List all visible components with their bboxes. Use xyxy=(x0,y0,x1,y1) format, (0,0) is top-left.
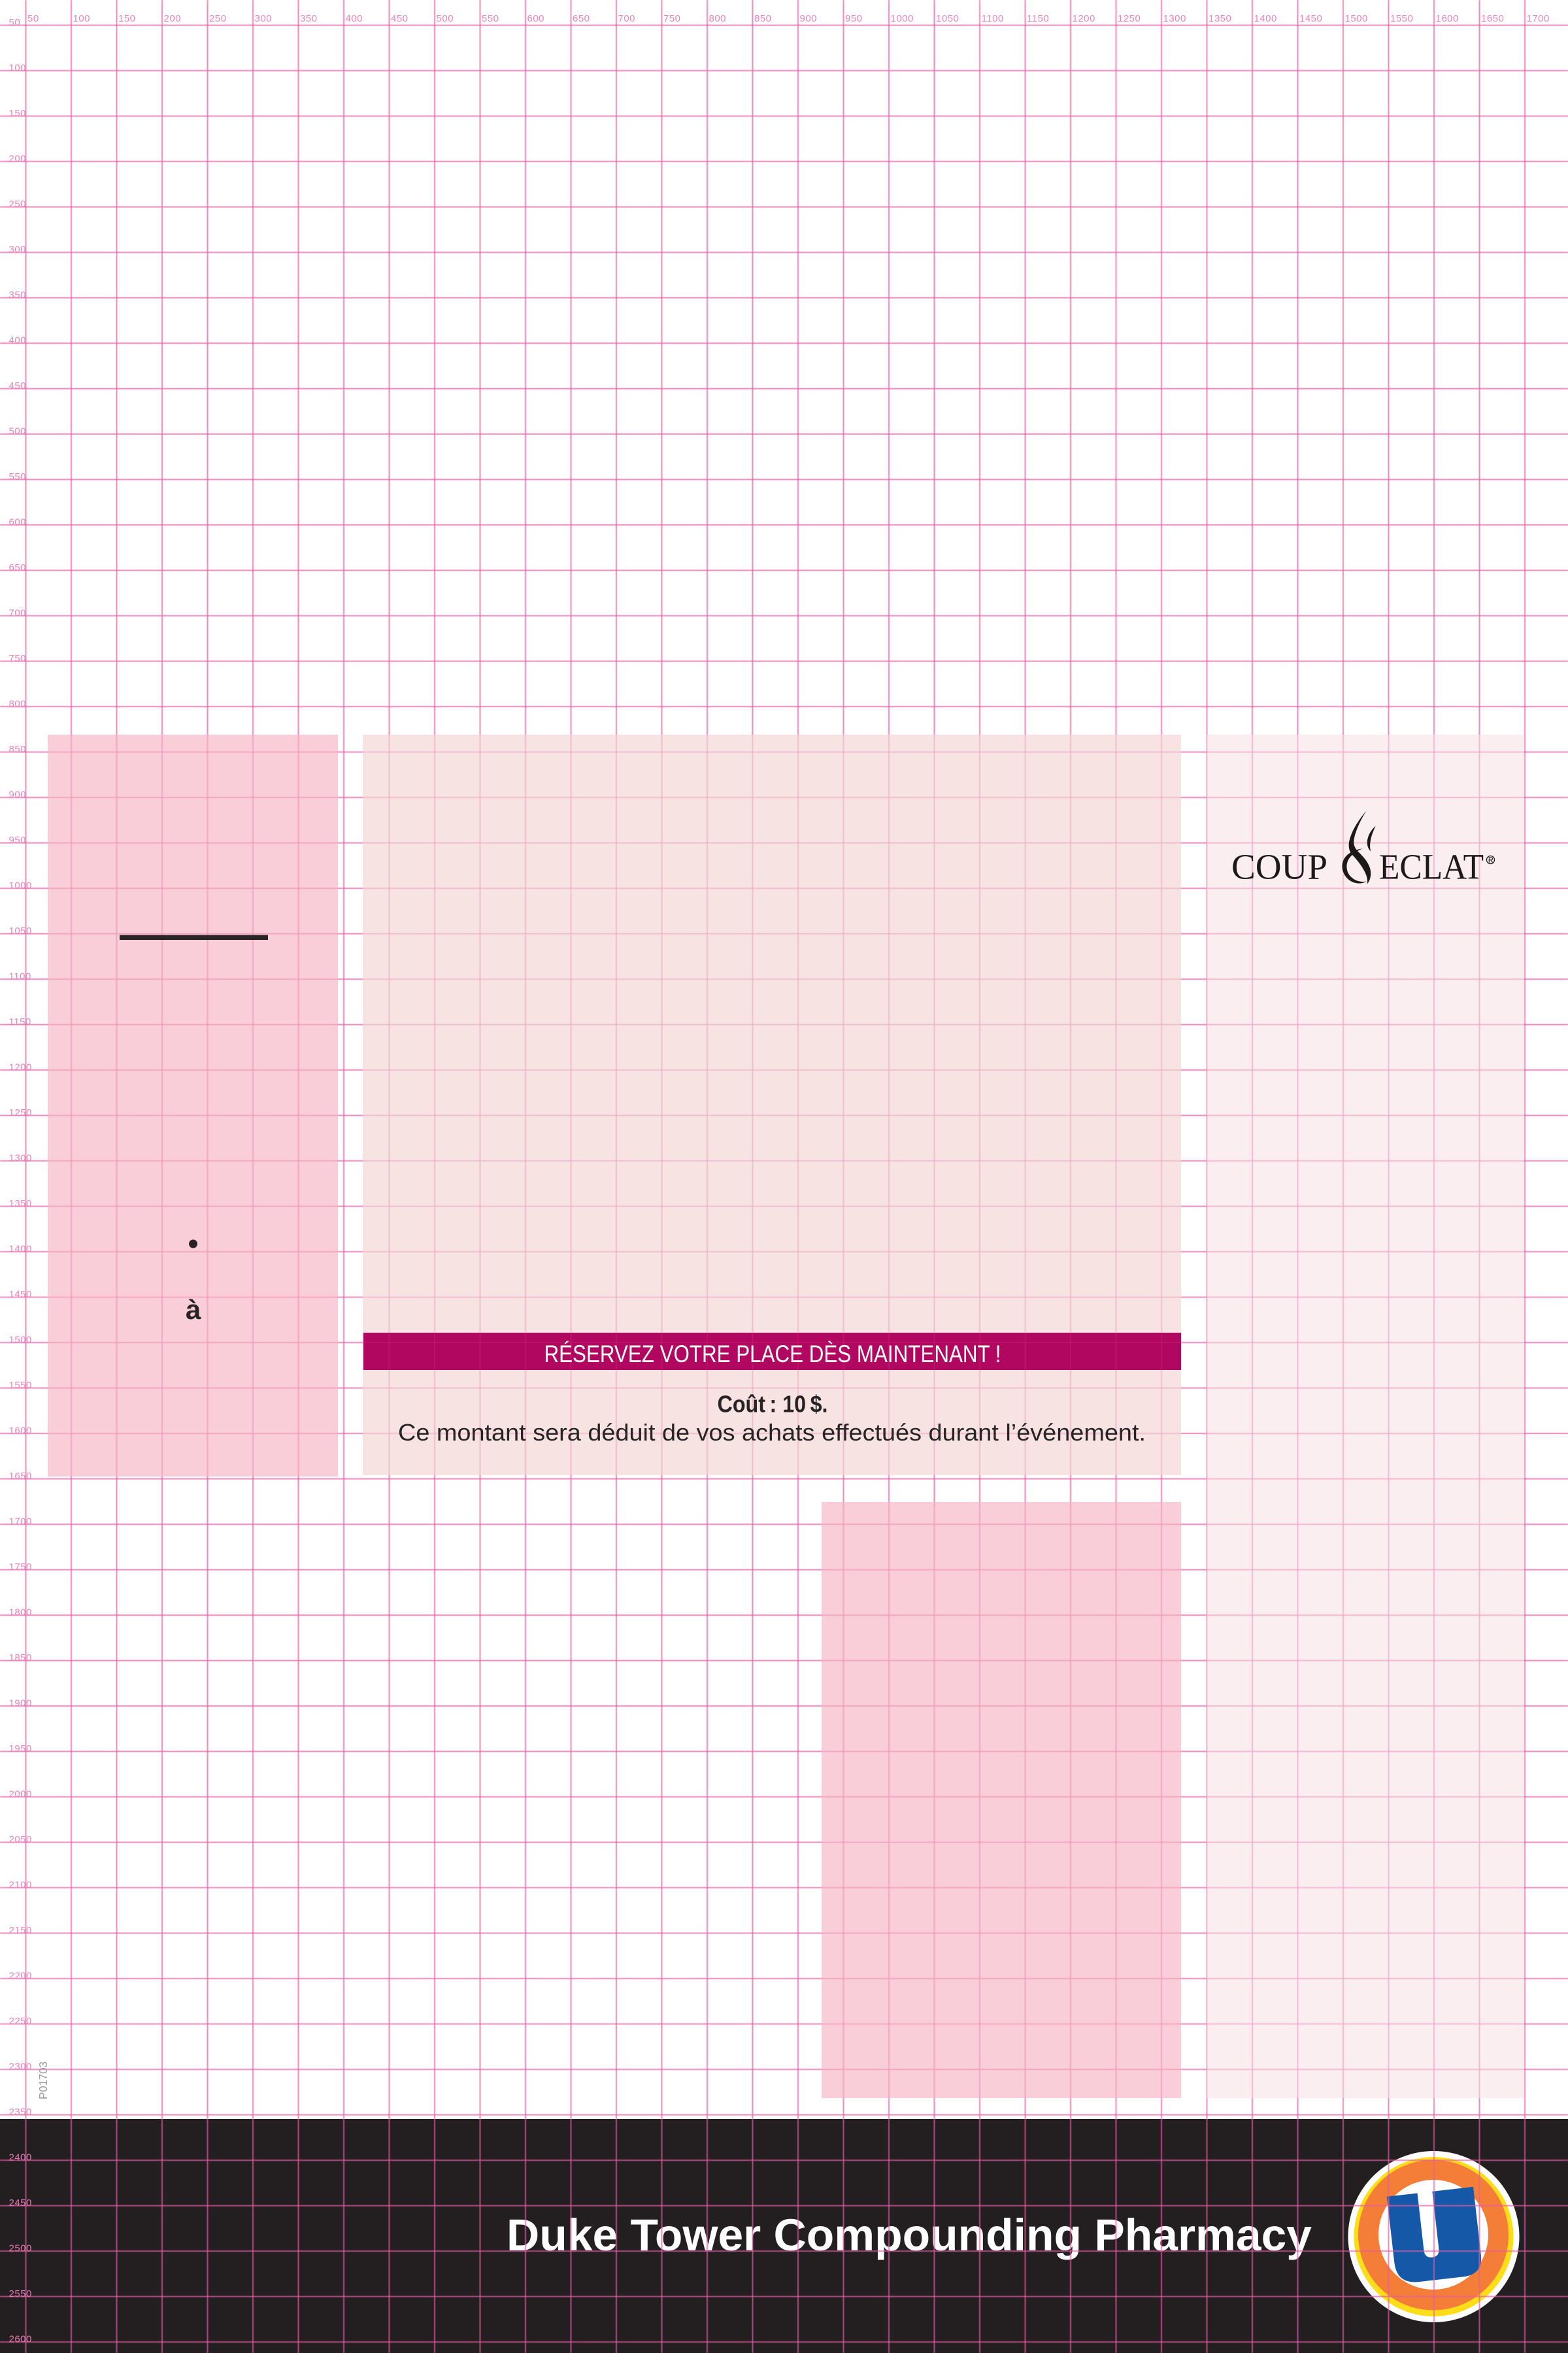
svg-text:900: 900 xyxy=(800,13,818,24)
svg-text:200: 200 xyxy=(9,154,27,165)
svg-text:450: 450 xyxy=(9,380,27,392)
svg-text:1900: 1900 xyxy=(9,1698,32,1709)
svg-text:650: 650 xyxy=(9,562,27,573)
svg-text:2350: 2350 xyxy=(9,2107,32,2118)
svg-text:1250: 1250 xyxy=(1118,13,1141,24)
svg-text:1650: 1650 xyxy=(1481,13,1504,24)
svg-text:1200: 1200 xyxy=(9,1062,32,1073)
svg-text:1550: 1550 xyxy=(9,1380,32,1391)
svg-text:1450: 1450 xyxy=(9,1289,32,1300)
svg-text:1100: 1100 xyxy=(982,13,1004,24)
svg-text:1550: 1550 xyxy=(1390,13,1413,24)
svg-text:2600: 2600 xyxy=(9,2334,32,2345)
svg-text:300: 300 xyxy=(255,13,273,24)
svg-text:1000: 1000 xyxy=(9,880,32,892)
svg-text:2550: 2550 xyxy=(9,2288,32,2299)
svg-text:50: 50 xyxy=(27,13,39,24)
svg-text:600: 600 xyxy=(527,13,545,24)
svg-text:850: 850 xyxy=(754,13,772,24)
svg-text:2100: 2100 xyxy=(9,1880,32,1891)
svg-text:1400: 1400 xyxy=(1254,13,1277,24)
svg-text:2000: 2000 xyxy=(9,1789,32,1800)
svg-text:200: 200 xyxy=(164,13,182,24)
svg-text:450: 450 xyxy=(391,13,409,24)
svg-text:850: 850 xyxy=(9,744,27,755)
svg-text:1700: 1700 xyxy=(1527,13,1550,24)
svg-text:1750: 1750 xyxy=(9,1561,32,1573)
svg-text:950: 950 xyxy=(845,13,863,24)
svg-text:650: 650 xyxy=(573,13,590,24)
svg-text:1350: 1350 xyxy=(9,1198,32,1209)
svg-text:550: 550 xyxy=(482,13,499,24)
svg-text:1500: 1500 xyxy=(1345,13,1368,24)
svg-text:1600: 1600 xyxy=(1436,13,1459,24)
svg-text:500: 500 xyxy=(9,426,27,437)
svg-text:550: 550 xyxy=(9,471,27,482)
svg-text:1300: 1300 xyxy=(9,1153,32,1164)
svg-text:700: 700 xyxy=(9,608,27,619)
svg-text:2500: 2500 xyxy=(9,2243,32,2254)
svg-text:100: 100 xyxy=(9,63,27,74)
svg-text:1250: 1250 xyxy=(9,1107,32,1118)
svg-text:800: 800 xyxy=(709,13,727,24)
svg-text:1700: 1700 xyxy=(9,1516,32,1527)
svg-text:500: 500 xyxy=(437,13,454,24)
svg-text:P01703: P01703 xyxy=(37,2061,50,2099)
svg-text:1200: 1200 xyxy=(1073,13,1095,24)
svg-text:1600: 1600 xyxy=(9,1426,32,1437)
svg-text:150: 150 xyxy=(118,13,136,24)
svg-text:2400: 2400 xyxy=(9,2152,32,2163)
svg-text:2200: 2200 xyxy=(9,1971,32,1982)
svg-text:50: 50 xyxy=(9,17,21,28)
svg-text:2050: 2050 xyxy=(9,1834,32,1845)
svg-text:350: 350 xyxy=(300,13,318,24)
svg-text:600: 600 xyxy=(9,517,27,528)
svg-text:1500: 1500 xyxy=(9,1335,32,1346)
svg-text:750: 750 xyxy=(663,13,681,24)
svg-text:RÉSERVEZ VOTRE PLACE DÈS MAINT: RÉSERVEZ VOTRE PLACE DÈS MAINTENANT ! xyxy=(544,1341,1001,1367)
svg-text:1150: 1150 xyxy=(9,1016,31,1027)
svg-text:250: 250 xyxy=(209,13,227,24)
svg-text:900: 900 xyxy=(9,790,27,801)
svg-text:Ce montant sera déduit de vos: Ce montant sera déduit de vos achats eff… xyxy=(398,1419,1146,1446)
svg-text:2250: 2250 xyxy=(9,2016,32,2027)
svg-text:100: 100 xyxy=(73,13,91,24)
svg-text:1800: 1800 xyxy=(9,1607,32,1618)
svg-text:400: 400 xyxy=(9,335,27,346)
svg-text:300: 300 xyxy=(9,244,27,256)
svg-text:400: 400 xyxy=(346,13,363,24)
svg-text:1350: 1350 xyxy=(1209,13,1231,24)
svg-text:350: 350 xyxy=(9,290,27,301)
svg-text:2300: 2300 xyxy=(9,2061,32,2073)
svg-text:COUP: COUP xyxy=(1231,847,1327,887)
svg-text:1050: 1050 xyxy=(9,926,32,937)
svg-text:1100: 1100 xyxy=(9,971,31,982)
svg-text:700: 700 xyxy=(618,13,636,24)
svg-text:1850: 1850 xyxy=(9,1652,32,1663)
svg-text:1000: 1000 xyxy=(891,13,914,24)
svg-text:1300: 1300 xyxy=(1163,13,1186,24)
svg-text:1150: 1150 xyxy=(1027,13,1049,24)
svg-text:800: 800 xyxy=(9,699,27,710)
svg-text:à: à xyxy=(186,1294,201,1325)
svg-text:1650: 1650 xyxy=(9,1471,32,1482)
svg-text:1050: 1050 xyxy=(936,13,959,24)
svg-text:2450: 2450 xyxy=(9,2197,32,2209)
svg-text:2150: 2150 xyxy=(9,1925,32,1936)
svg-text:1400: 1400 xyxy=(9,1244,32,1255)
svg-text:750: 750 xyxy=(9,653,27,664)
svg-text:Coût : 10 $.: Coût : 10 $. xyxy=(718,1391,828,1418)
svg-text:150: 150 xyxy=(9,108,27,119)
svg-text:250: 250 xyxy=(9,199,27,210)
svg-text:Duke Tower Compounding Pharmac: Duke Tower Compounding Pharmacy xyxy=(507,2210,1312,2260)
svg-text:ECLAT: ECLAT xyxy=(1379,847,1484,887)
svg-text:1450: 1450 xyxy=(1299,13,1322,24)
svg-text:1950: 1950 xyxy=(9,1743,32,1754)
svg-text:950: 950 xyxy=(9,835,27,846)
